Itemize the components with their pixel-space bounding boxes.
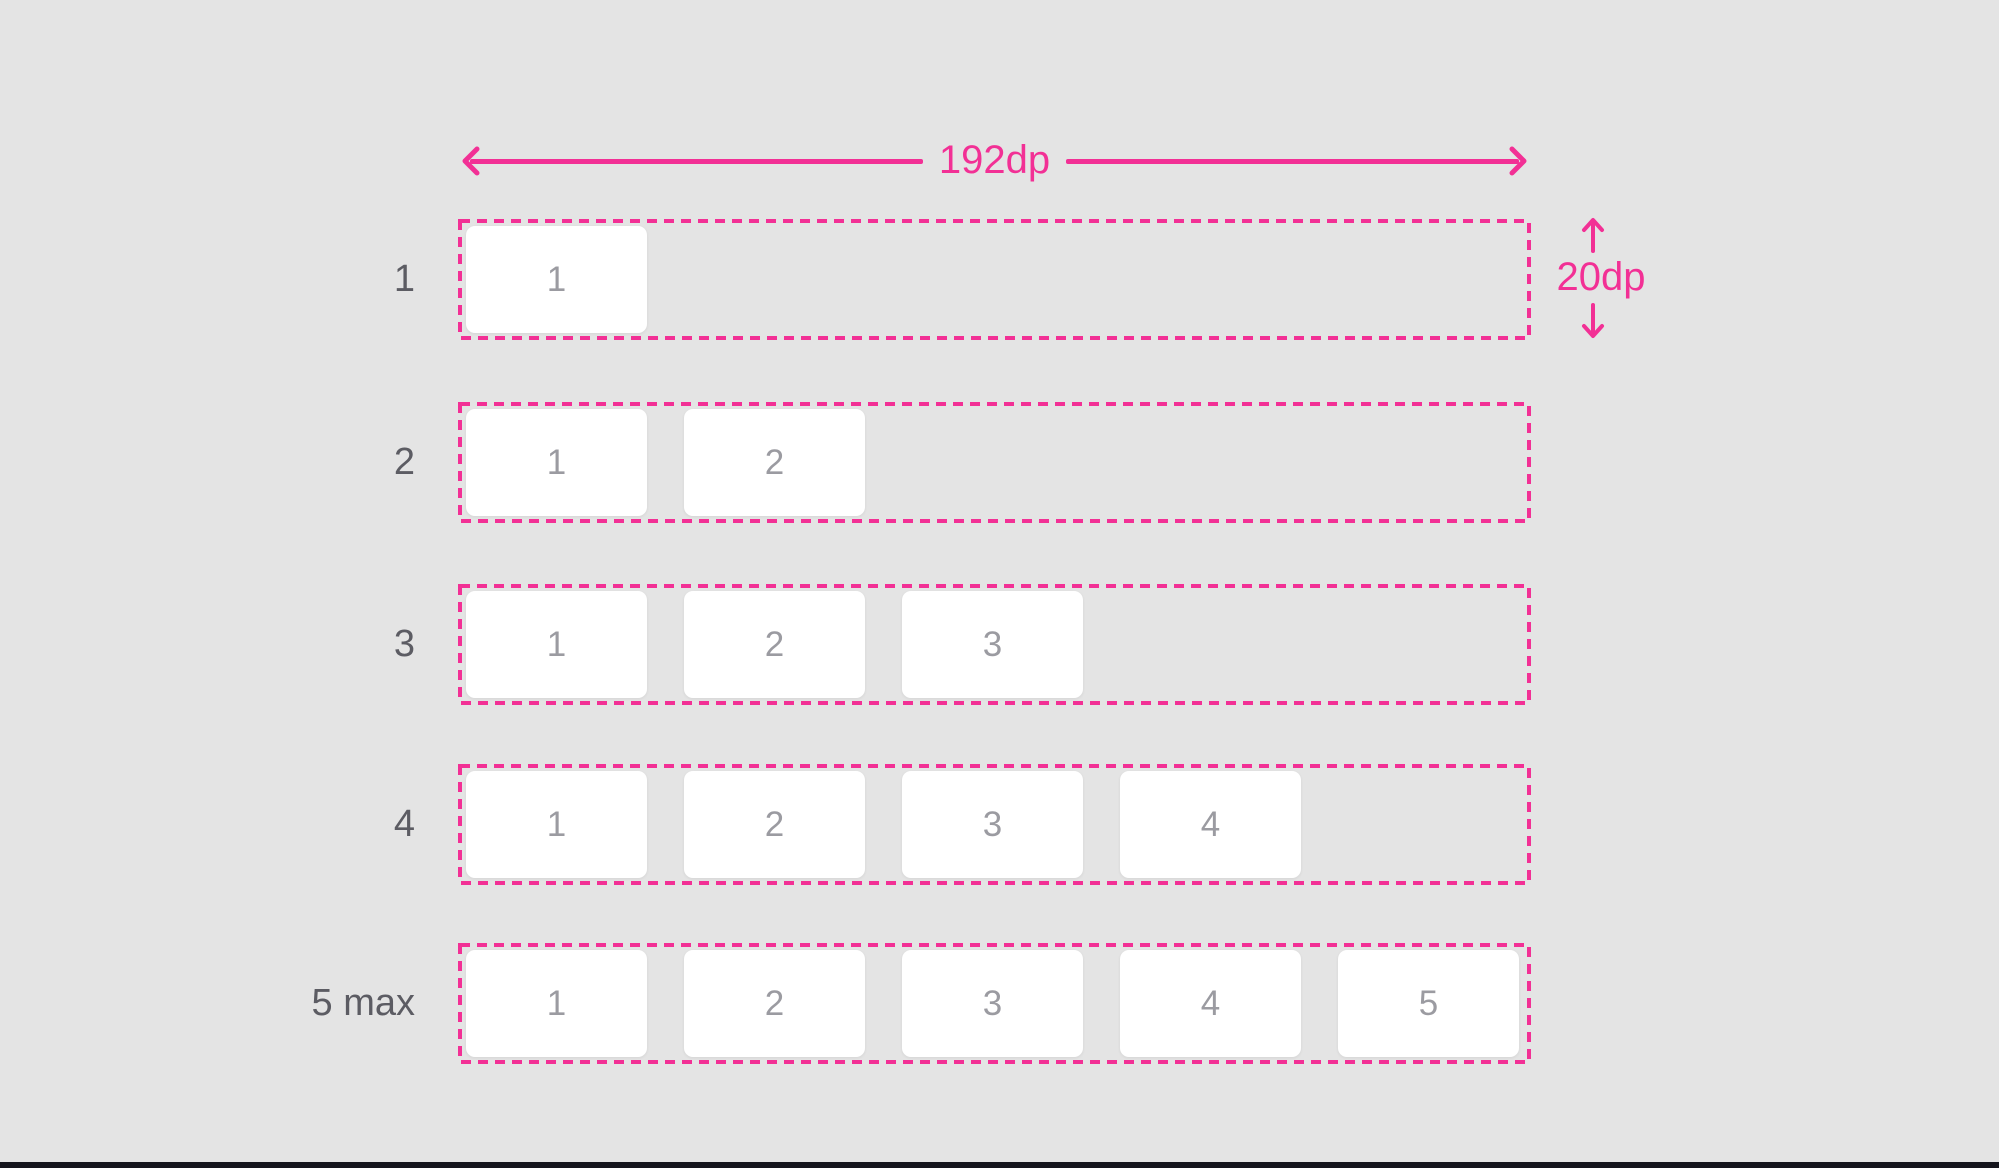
grid-item-number: 3 (983, 984, 1002, 1024)
row-label: 2 (240, 441, 415, 484)
grid-row-1: 1 1 (240, 219, 1531, 340)
grid-item: 2 (684, 950, 865, 1057)
grid-item-number: 1 (547, 625, 566, 665)
grid-item-number: 3 (983, 625, 1002, 665)
grid-item-number: 2 (765, 625, 784, 665)
grid-item: 4 (1120, 950, 1301, 1057)
grid-item: 1 (466, 409, 647, 516)
grid-item: 2 (684, 771, 865, 878)
row-track: 1 2 (458, 402, 1531, 523)
arrow-down-icon (1578, 303, 1608, 341)
grid-item: 4 (1120, 771, 1301, 878)
dimension-line (1066, 159, 1519, 164)
bottom-bar (0, 1162, 1999, 1168)
row-label: 1 (240, 258, 415, 301)
grid-row-3: 3 1 2 3 (240, 584, 1531, 705)
grid-item-number: 1 (547, 260, 566, 300)
row-track: 1 (458, 219, 1531, 340)
grid-item-number: 4 (1201, 984, 1220, 1024)
grid-row-4: 4 1 2 3 4 (240, 764, 1531, 885)
grid-item-number: 1 (547, 984, 566, 1024)
grid-item-number: 5 (1419, 984, 1438, 1024)
grid-item: 1 (466, 950, 647, 1057)
grid-item: 1 (466, 226, 647, 333)
grid-item: 1 (466, 771, 647, 878)
grid-item: 2 (684, 409, 865, 516)
row-label: 3 (240, 623, 415, 666)
row-track: 1 2 3 4 5 (458, 943, 1531, 1064)
height-dimension: 20dp (1538, 210, 1648, 346)
width-dimension-label: 192dp (923, 140, 1066, 180)
grid-item: 2 (684, 591, 865, 698)
width-dimension: 192dp (458, 139, 1531, 183)
grid-item: 5 (1338, 950, 1519, 1057)
box-group: 1 2 (458, 402, 1531, 523)
grid-item: 3 (902, 950, 1083, 1057)
grid-item-number: 3 (983, 805, 1002, 845)
dimension-line (470, 159, 923, 164)
grid-item-number: 1 (547, 805, 566, 845)
box-group: 1 2 3 4 (458, 764, 1531, 885)
grid-item: 1 (466, 591, 647, 698)
grid-spec-diagram: 192dp 20dp 1 1 2 1 (0, 0, 1999, 1168)
box-group: 1 2 3 (458, 584, 1531, 705)
box-group: 1 2 3 4 5 (458, 943, 1531, 1064)
row-track: 1 2 3 4 (458, 764, 1531, 885)
grid-item-number: 2 (765, 805, 784, 845)
height-dimension-label: 20dp (1557, 257, 1646, 297)
grid-item-number: 1 (547, 443, 566, 483)
row-track: 1 2 3 (458, 584, 1531, 705)
grid-item: 3 (902, 771, 1083, 878)
grid-item-number: 2 (765, 984, 784, 1024)
grid-item-number: 2 (765, 443, 784, 483)
row-label: 5 max (240, 982, 415, 1025)
row-label: 4 (240, 803, 415, 846)
box-group: 1 (458, 219, 1531, 340)
grid-item-number: 4 (1201, 805, 1220, 845)
grid-item: 3 (902, 591, 1083, 698)
arrow-right-icon (1505, 144, 1531, 178)
arrow-up-icon (1578, 215, 1608, 253)
grid-row-5-max: 5 max 1 2 3 4 5 (240, 943, 1531, 1064)
grid-row-2: 2 1 2 (240, 402, 1531, 523)
